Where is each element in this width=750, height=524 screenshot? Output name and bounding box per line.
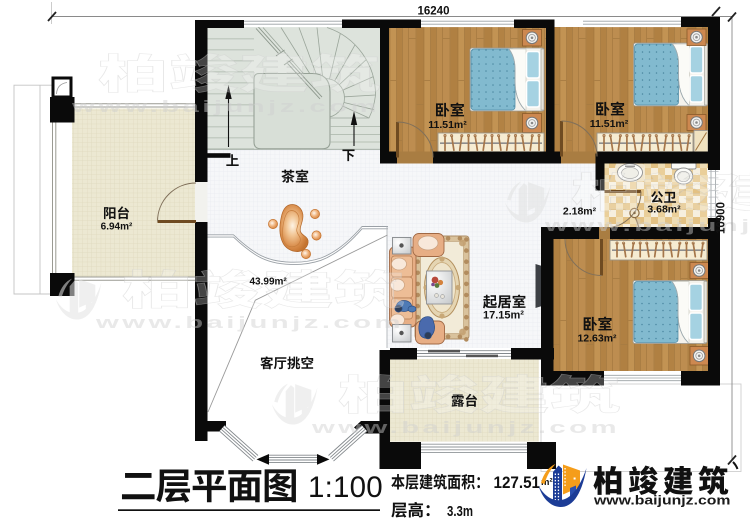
svg-text:11.51m²: 11.51m²: [428, 119, 467, 131]
svg-text:11.51m²: 11.51m²: [590, 118, 629, 130]
svg-text:12.63m²: 12.63m²: [577, 333, 617, 345]
svg-text:6.94m²: 6.94m²: [101, 222, 133, 233]
svg-text:16240: 16240: [418, 6, 450, 18]
svg-text:www.baijunjz.com: www.baijunjz.com: [94, 313, 404, 332]
svg-text:1:100: 1:100: [308, 471, 383, 504]
svg-text:www.baijunjz.com: www.baijunjz.com: [70, 97, 380, 116]
svg-text:2.18m²: 2.18m²: [563, 206, 597, 218]
svg-text:www.baijunjz.com: www.baijunjz.com: [310, 418, 620, 437]
svg-text:3.68m²: 3.68m²: [647, 204, 681, 216]
svg-text:17.15m²: 17.15m²: [483, 310, 524, 322]
svg-text:43.99m²: 43.99m²: [250, 277, 288, 288]
svg-text:3.3m: 3.3m: [447, 503, 473, 520]
svg-text:127.51: 127.51: [494, 474, 541, 492]
svg-text:www.baijunjz.com: www.baijunjz.com: [593, 494, 731, 508]
svg-text:10900: 10900: [716, 202, 728, 234]
